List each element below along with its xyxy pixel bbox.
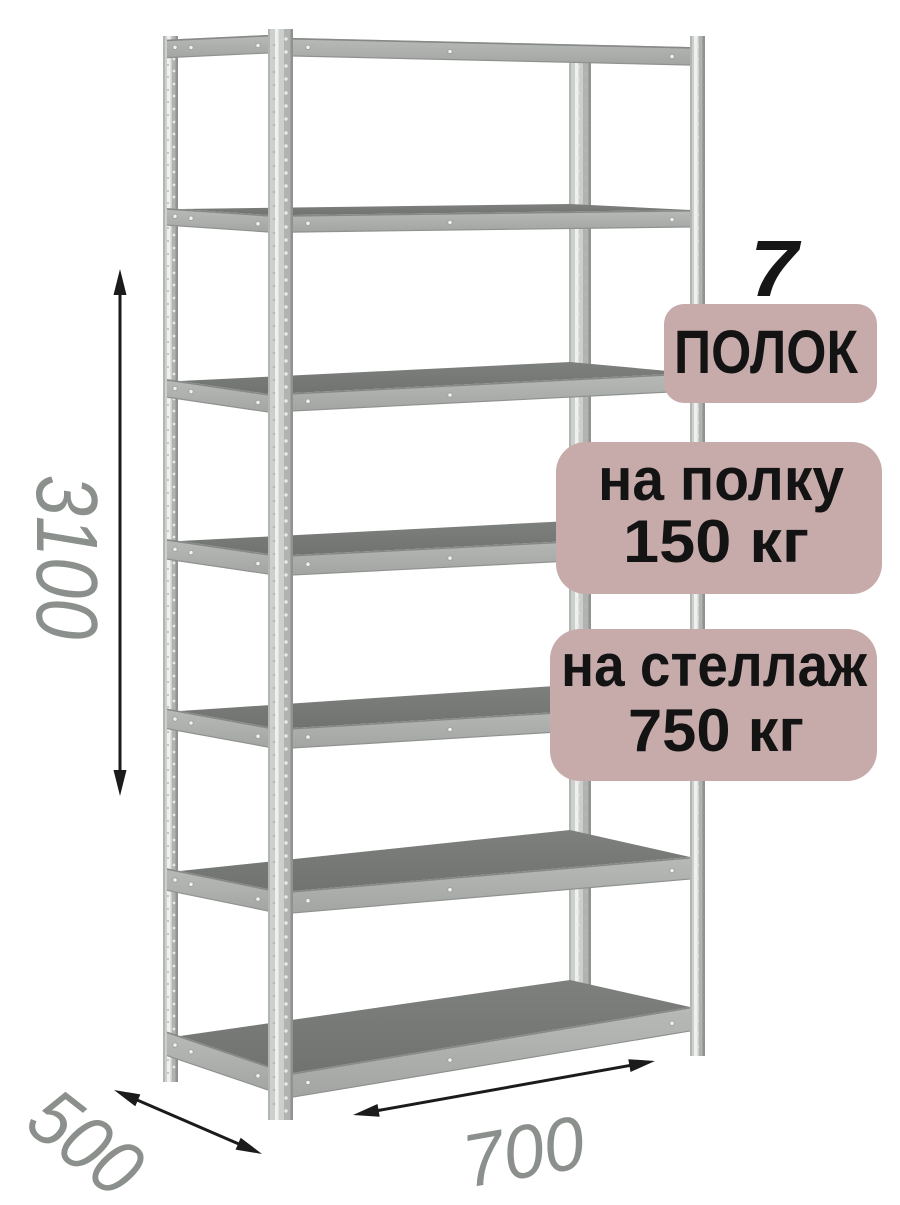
svg-text:7: 7: [750, 224, 802, 313]
svg-text:на стеллаж: на стеллаж: [561, 632, 868, 699]
svg-text:на полку: на полку: [598, 446, 845, 513]
svg-text:ПОЛОК: ПОЛОК: [674, 318, 859, 386]
svg-text:150 кг: 150 кг: [623, 508, 809, 575]
svg-text:3100: 3100: [18, 475, 115, 640]
svg-text:750 кг: 750 кг: [628, 697, 804, 764]
